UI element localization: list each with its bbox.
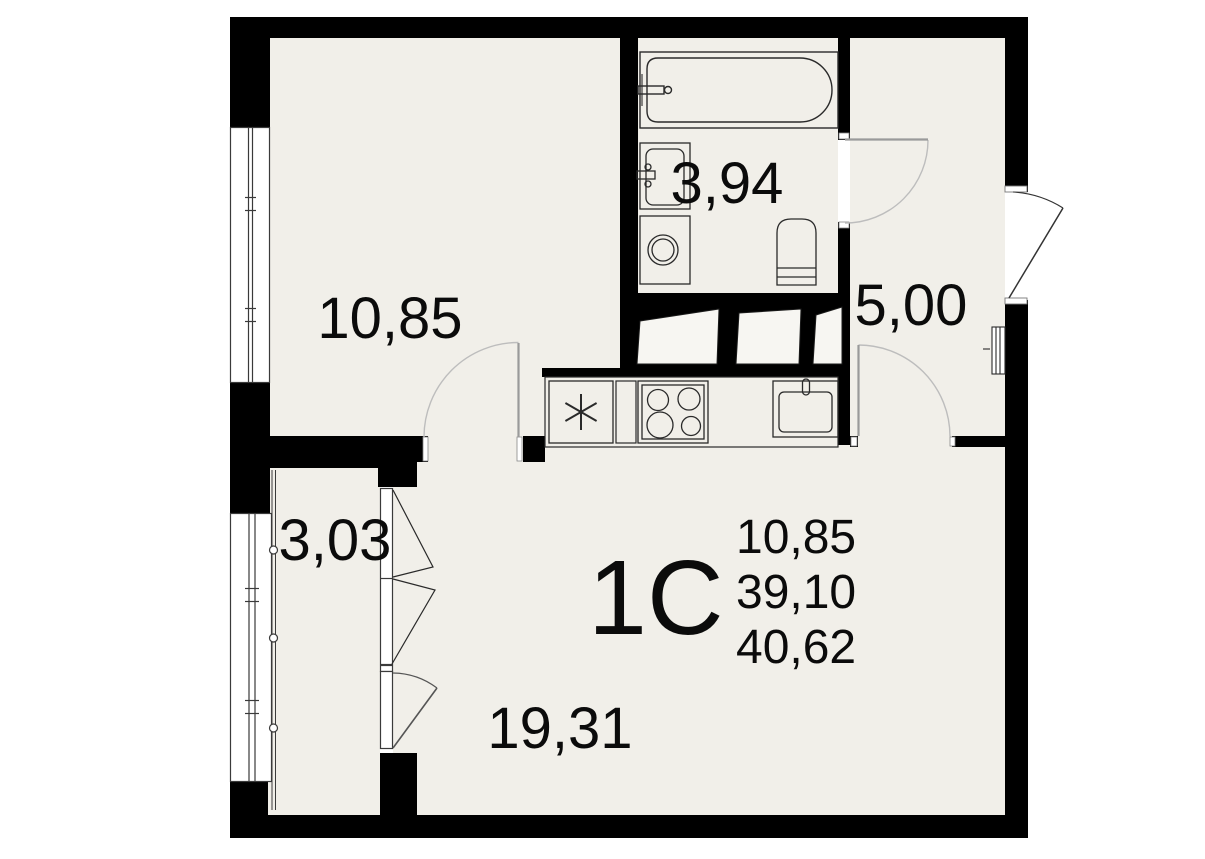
wall-corner-topleft: [230, 17, 270, 127]
wall-vent-block: [622, 293, 850, 377]
hallway-area-label: 5,00: [831, 277, 991, 335]
wall-kitchen-thin: [542, 368, 624, 377]
wall-hall-bottom: [952, 436, 1013, 447]
wall-balcony-lip: [268, 462, 380, 468]
wall-door-stub: [523, 436, 545, 462]
wall-right-top: [1005, 38, 1028, 192]
unit-rooms-area: 10,85: [736, 510, 856, 565]
entry-door-icon: [1005, 186, 1063, 304]
wall-balcony-bottom-block: [380, 753, 417, 817]
window-main-room-icon: [231, 127, 270, 383]
unit-areas-summary: 10,85 39,10 40,62: [736, 510, 856, 675]
wall-hall-stub: [850, 436, 858, 447]
wall-right-bottom: [1005, 300, 1028, 838]
hallway-floor: [850, 38, 1005, 436]
room-area-label: 10,85: [310, 290, 470, 348]
bathroom-area-label: 3,94: [647, 155, 807, 213]
wall-top: [230, 17, 1028, 38]
unit-total-area: 40,62: [736, 620, 856, 675]
unit-type-label: 1С: [588, 545, 724, 651]
unit-living-area: 39,10: [736, 565, 856, 620]
kitchen-living-area-label: 19,31: [480, 700, 640, 758]
wall-bottom: [230, 815, 1028, 838]
kitchen-floor: [518, 377, 838, 436]
floorplan-canvas: 10,85 3,94 5,00 3,03 19,31 1С 10,85 39,1…: [0, 0, 1205, 859]
balcony-area-label: 3,03: [255, 512, 415, 570]
wall-bathroom-right-top: [838, 38, 850, 140]
wall-balcony-top-block: [378, 448, 417, 487]
